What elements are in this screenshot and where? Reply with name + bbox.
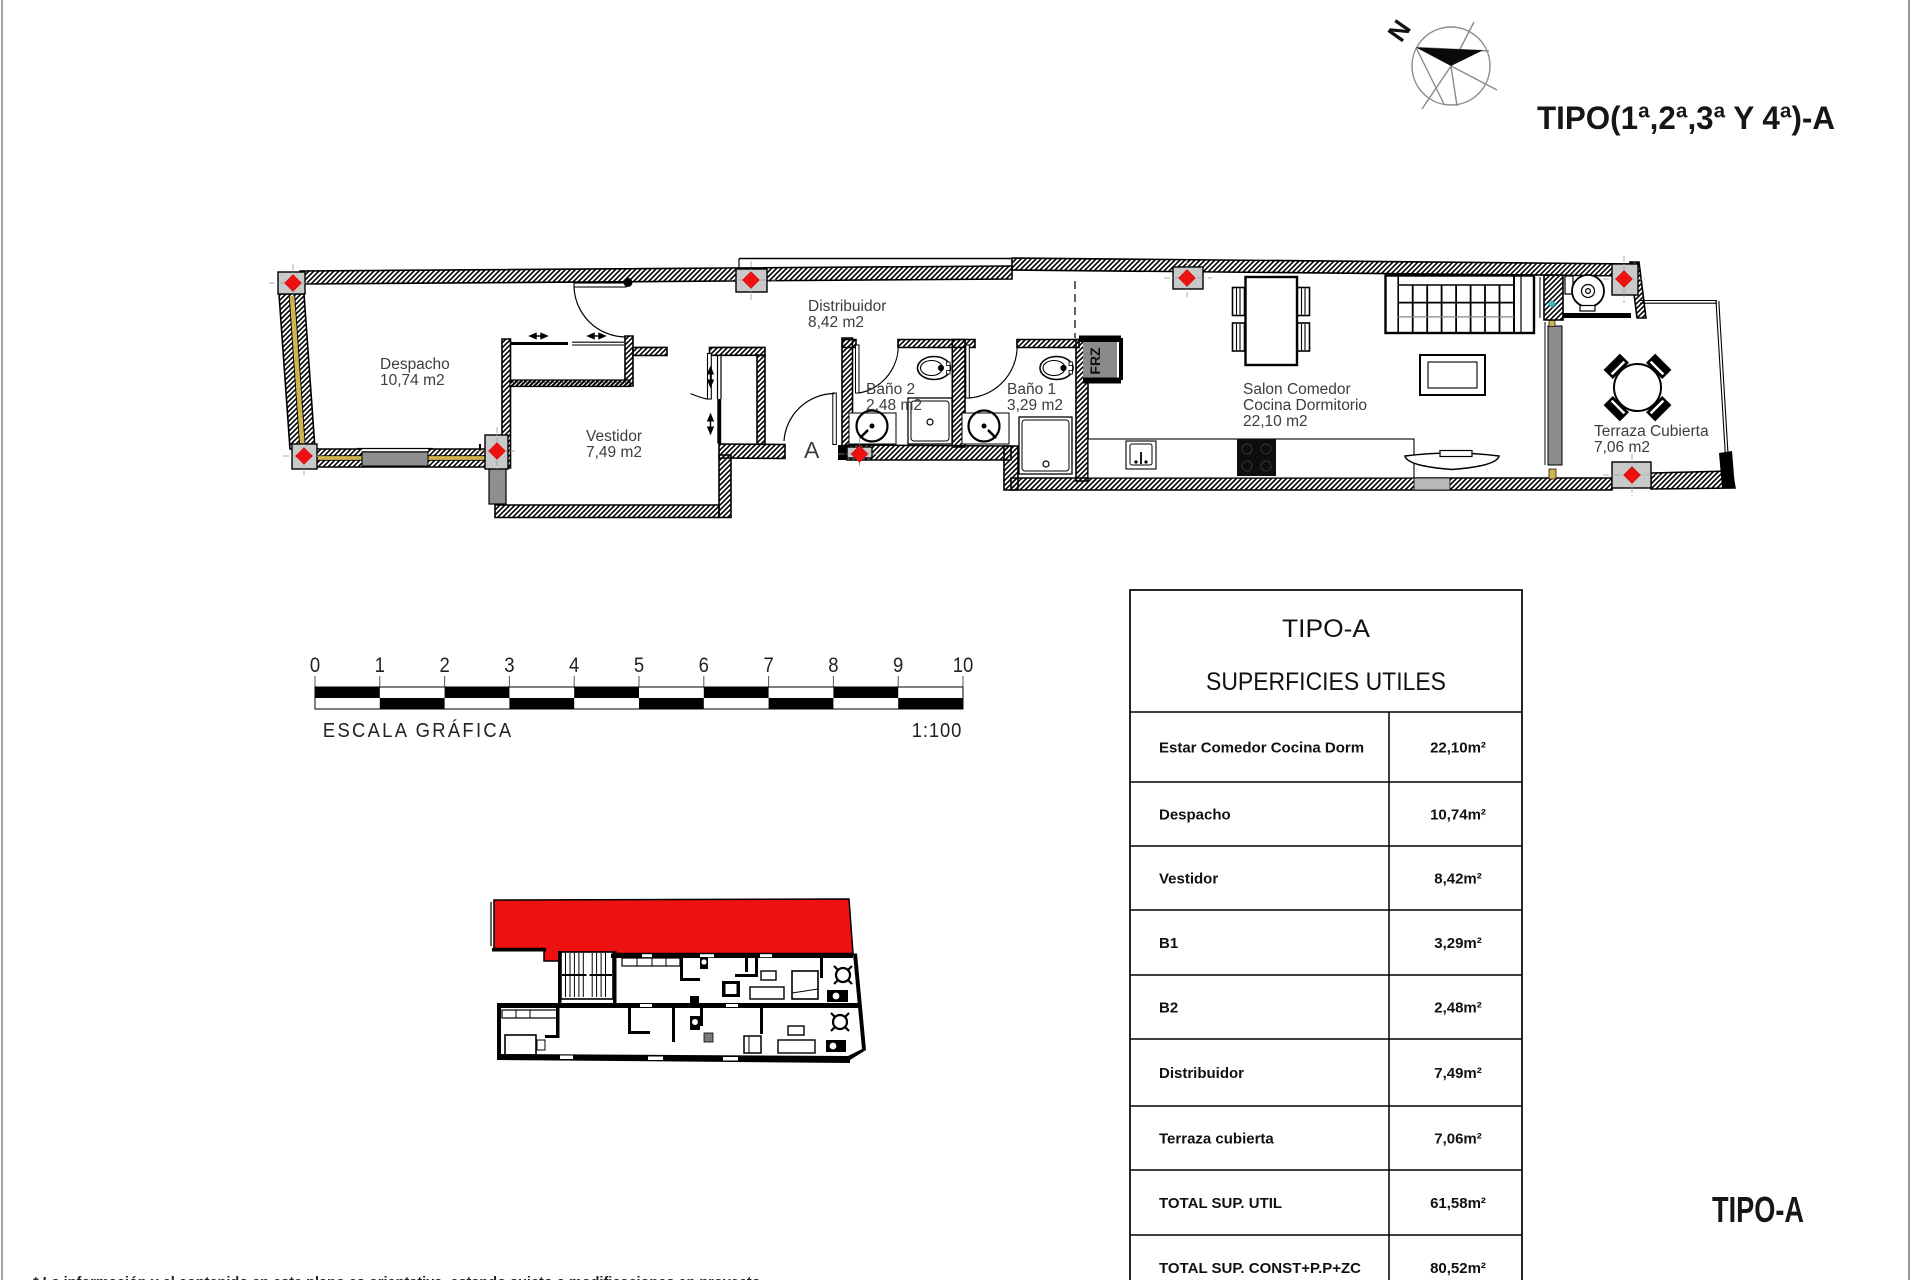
svg-text:0: 0: [310, 654, 320, 677]
svg-text:7: 7: [763, 654, 773, 677]
svg-text:3: 3: [504, 654, 514, 677]
svg-text:1: 1: [375, 654, 385, 677]
svg-text:Distribuidor: Distribuidor: [1159, 1065, 1244, 1082]
svg-text:B1: B1: [1159, 935, 1178, 952]
svg-text:2,48 m2: 2,48 m2: [866, 397, 922, 414]
svg-text:8,42 m2: 8,42 m2: [808, 314, 864, 331]
svg-text:Salon Comedor: Salon Comedor: [1243, 381, 1351, 398]
svg-text:Estar Comedor Cocina Dorm: Estar Comedor Cocina Dorm: [1159, 740, 1364, 757]
svg-text:3,29 m2: 3,29 m2: [1007, 397, 1063, 414]
svg-text:10: 10: [953, 654, 974, 677]
svg-text:A: A: [804, 437, 820, 463]
svg-text:Terraza cubierta: Terraza cubierta: [1159, 1131, 1274, 1148]
svg-text:6: 6: [699, 654, 709, 677]
svg-text:Distribuidor: Distribuidor: [808, 298, 886, 315]
svg-text:SUPERFICIES UTILES: SUPERFICIES UTILES: [1206, 668, 1446, 696]
svg-text:Despacho: Despacho: [1159, 807, 1231, 824]
svg-text:* La información y el contenid: * La información y el contenido en este …: [33, 1275, 761, 1280]
svg-text:61,58m²: 61,58m²: [1430, 1195, 1486, 1212]
svg-text:Baño 2: Baño 2: [866, 381, 915, 398]
svg-text:7,06 m2: 7,06 m2: [1594, 439, 1650, 456]
svg-text:TOTAL SUP. CONST+P.P+ZC: TOTAL SUP. CONST+P.P+ZC: [1159, 1260, 1361, 1277]
svg-text:Baño 1: Baño 1: [1007, 381, 1056, 398]
svg-text:7,49m²: 7,49m²: [1434, 1065, 1482, 1082]
svg-text:80,52m²: 80,52m²: [1430, 1260, 1486, 1277]
svg-text:10,74 m2: 10,74 m2: [380, 372, 445, 389]
svg-text:8: 8: [828, 654, 838, 677]
svg-text:ESCALA GRÁFICA: ESCALA GRÁFICA: [323, 720, 514, 742]
svg-text:4: 4: [569, 654, 579, 677]
svg-text:3,29m²: 3,29m²: [1434, 935, 1482, 952]
svg-text:2,48m²: 2,48m²: [1434, 1000, 1482, 1017]
svg-text:10,74m²: 10,74m²: [1430, 807, 1486, 824]
svg-text:TIPO-A: TIPO-A: [1282, 615, 1370, 643]
svg-text:B2: B2: [1159, 1000, 1178, 1017]
svg-text:TOTAL SUP. UTIL: TOTAL SUP. UTIL: [1159, 1195, 1282, 1212]
svg-text:1:100: 1:100: [912, 720, 963, 742]
svg-text:22,10 m2: 22,10 m2: [1243, 413, 1308, 430]
svg-text:Cocina Dormitorio: Cocina Dormitorio: [1243, 397, 1367, 414]
svg-text:Vestidor: Vestidor: [586, 428, 642, 445]
svg-text:Despacho: Despacho: [380, 356, 450, 373]
svg-text:TIPO(1ª,2ª,3ª Y 4ª)-A: TIPO(1ª,2ª,3ª Y 4ª)-A: [1537, 100, 1835, 136]
svg-text:2: 2: [439, 654, 449, 677]
svg-text:9: 9: [893, 654, 903, 677]
svg-text:8,42m²: 8,42m²: [1434, 871, 1482, 888]
svg-text:7,49 m2: 7,49 m2: [586, 444, 642, 461]
svg-text:Vestidor: Vestidor: [1159, 871, 1218, 888]
svg-text:7,06m²: 7,06m²: [1434, 1131, 1482, 1148]
svg-text:TIPO-A: TIPO-A: [1712, 1189, 1804, 1230]
svg-text:22,10m²: 22,10m²: [1430, 740, 1486, 757]
svg-text:Terraza Cubierta: Terraza Cubierta: [1594, 423, 1709, 440]
svg-text:FRZ: FRZ: [1087, 347, 1103, 375]
svg-text:5: 5: [634, 654, 644, 677]
